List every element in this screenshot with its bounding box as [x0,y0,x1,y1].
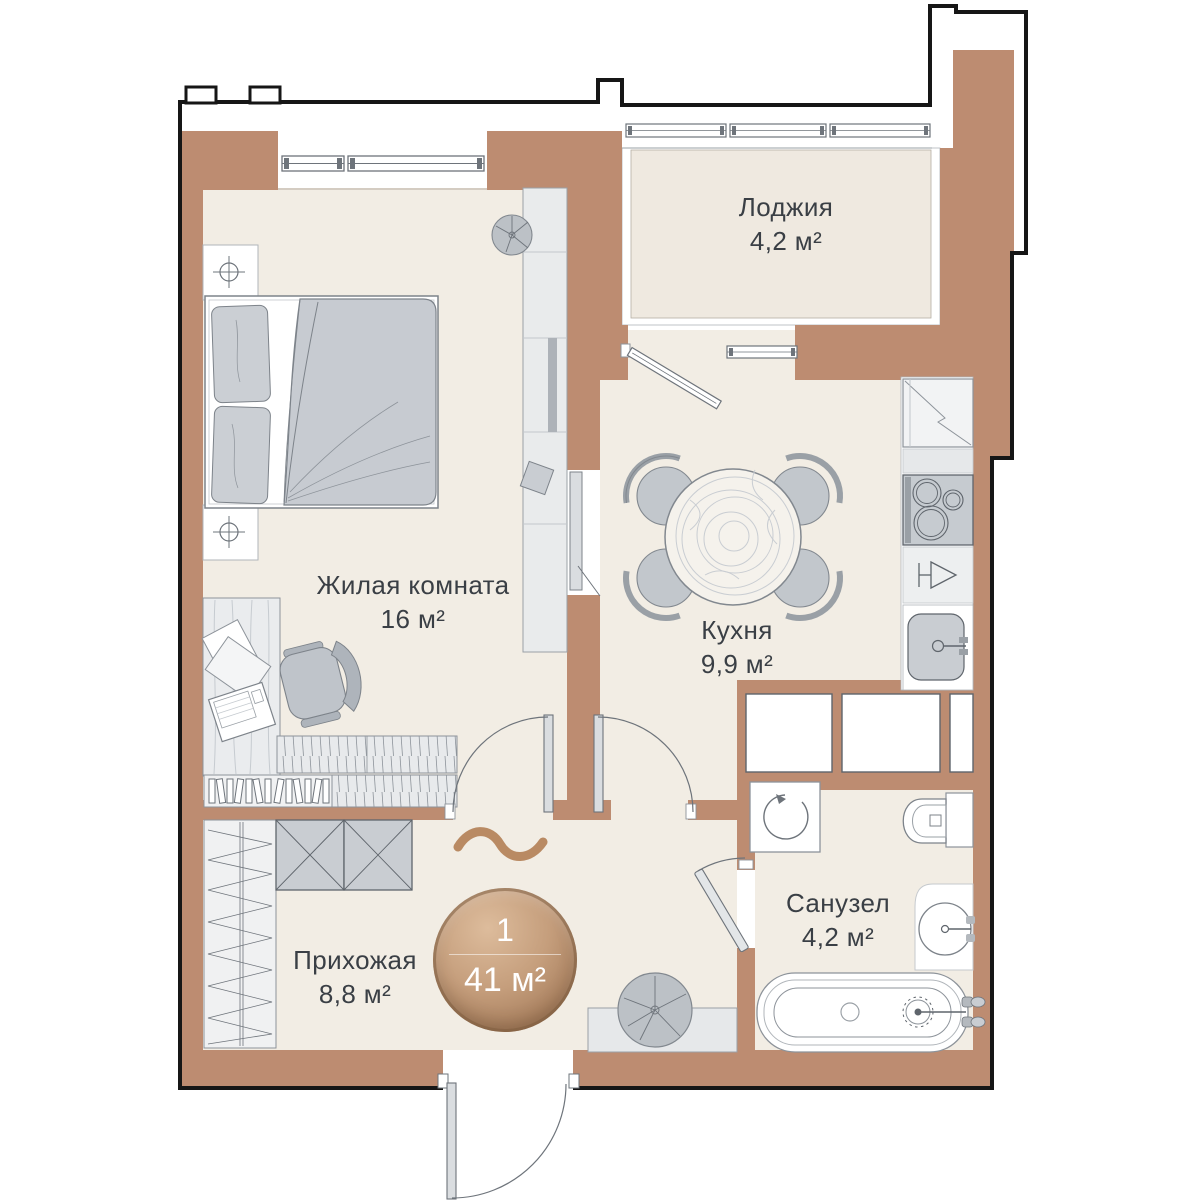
kitchen-sink-icon [903,605,973,690]
floor-plan: Жилая комната 16 м² Кухня 9,9 м² Лоджия … [0,0,1200,1200]
bookshelf-icon [204,775,332,807]
room-area: 16 м² [253,602,573,636]
label-loggia: Лоджия 4,2 м² [686,190,886,258]
room-area: 9,9 м² [637,647,837,681]
room-name: Прихожая [255,943,455,977]
badge-total-area: 41 м² [433,961,577,999]
room-name: Санузел [738,886,938,920]
kitchen-window-icon [727,346,797,358]
label-bathroom: Санузел 4,2 м² [738,886,938,954]
double-bed-icon [205,296,438,508]
vent-shafts [746,694,973,772]
shoe-cabinet-icon [276,820,412,890]
room-area: 4,2 м² [686,224,886,258]
room-area: 8,8 м² [255,977,455,1011]
label-living-room: Жилая комната 16 м² [253,568,573,636]
kitchen-counter [901,377,973,690]
hall-wardrobe-icon [204,820,276,1048]
room-name: Жилая комната [253,568,573,602]
loggia-glazing-icon [622,124,932,148]
room-name: Кухня [637,613,837,647]
room-area: 4,2 м² [738,920,938,954]
wall-niche-top [203,245,258,300]
wall-niche-bottom [203,505,258,560]
badge-divider [449,954,561,955]
room-name: Лоджия [686,190,886,224]
label-hallway: Прихожая 8,8 м² [255,943,455,1011]
label-kitchen: Кухня 9,9 м² [637,613,837,681]
living-plant-icon [492,215,532,255]
living-kitchen-door-icon [570,472,600,596]
bathtub-icon [757,973,985,1052]
entrance-door-icon [438,1074,579,1199]
toilet-icon [903,793,973,847]
stove-icon [903,475,973,545]
counter-icon [903,449,973,473]
dining-table-icon [665,469,801,605]
badge-rooms-count: 1 [433,912,577,948]
tv-icon [548,338,557,432]
corridor-floor [600,683,737,808]
counter-wine-glass-icon [903,547,973,603]
hall-plant-icon [618,973,692,1047]
total-area-badge: 1 41 м² [433,888,577,1032]
floor-plan-drawing [0,0,1200,1200]
washing-machine-icon [750,782,820,852]
fridge-icon [903,379,973,447]
